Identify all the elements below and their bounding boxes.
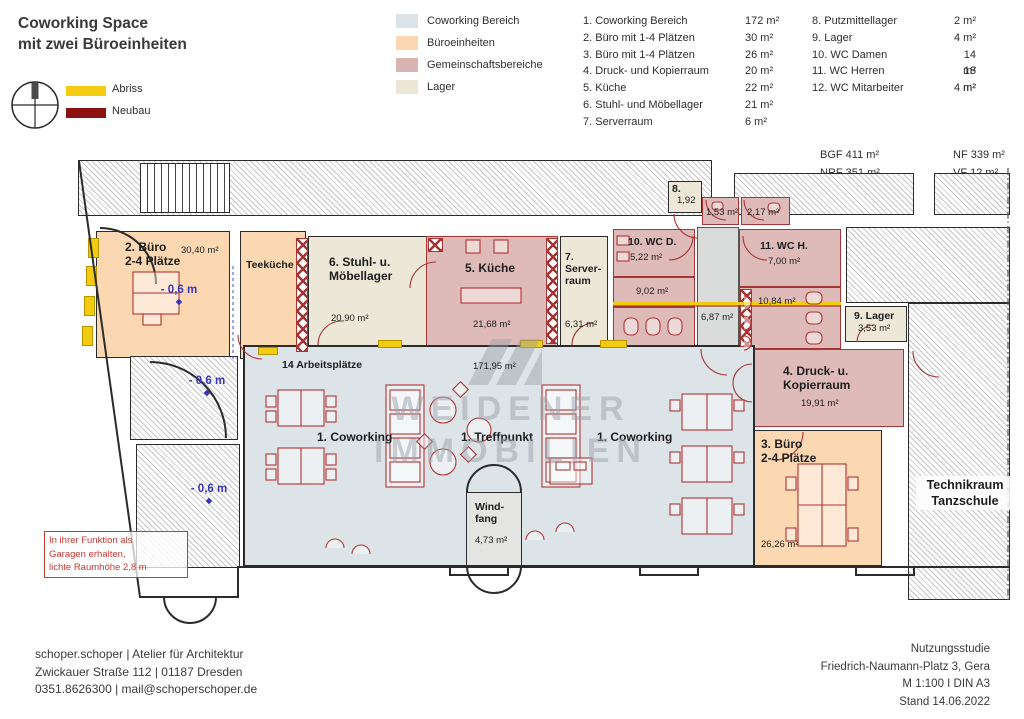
room-list-col2: 8. Putzmittellager2 m² 9. Lager4 m² 10. …: [812, 13, 1000, 97]
project-info: Nutzungsstudie Friedrich-Naumann-Platz 3…: [821, 641, 990, 711]
room-list-item: 10. WC Damen14 m²: [812, 47, 1000, 64]
legend-label-lager: Lager: [427, 81, 455, 93]
abriss-swatch: [66, 86, 106, 96]
room-7-serverraum: 7.Server-raum 6,31 m²: [560, 236, 608, 346]
legend-label-bueroeinheiten: Büroeinheiten: [427, 37, 495, 49]
room-list-item: 11. WC Herren18 m²: [812, 63, 1000, 80]
north-symbol-icon: [8, 78, 62, 132]
garage-note: In ihrer Funktion alsGaragen erhalten,li…: [44, 531, 188, 578]
legend-swatch-bueroeinheiten: [396, 36, 418, 50]
room-wc-herren-sub: 10,84 m²: [739, 287, 841, 349]
abriss-wall-segment: [86, 266, 97, 286]
room-windfang: Wind-fang 4,73 m²: [466, 492, 522, 566]
room-list-item: 7. Serverraum6 m²: [583, 114, 813, 131]
room-5-kueche: 5. Küche 21,68 m²: [426, 236, 558, 346]
room-list-item: 12. WC Mitarbeiter4 m²: [812, 80, 1000, 97]
room-2-buero: 2. Büro2-4 Plätze 30,40 m² - 0,6 m◆: [96, 231, 230, 358]
legend-swatch-gemeinschaft: [396, 58, 418, 72]
existing-area-right: [846, 227, 1010, 303]
abriss-opening: [258, 347, 278, 355]
neubau-label: Neubau: [112, 105, 151, 117]
existing-block-top-far-right: [934, 173, 1010, 215]
abriss-opening: [600, 340, 627, 348]
abriss-opening: [378, 340, 402, 348]
neubau-wall-post: [428, 238, 443, 252]
room-list-item: 6. Stuhl- und Möbellager21 m²: [583, 97, 813, 114]
abriss-line: [613, 302, 841, 305]
neubau-wall-posts: [740, 289, 752, 347]
room-9-lager: 9. Lager 3,53 m²: [845, 306, 907, 342]
room-list-item: 4. Druck- und Kopierraum20 m²: [583, 63, 813, 80]
legend-label-coworking: Coworking Bereich: [427, 15, 519, 27]
floor-plan-sheet: Coworking Space mit zwei Büroeinheiten A…: [0, 0, 1024, 719]
abriss-wall-segment: [88, 238, 99, 258]
room-list-item: 9. Lager4 m²: [812, 30, 1000, 47]
abriss-wall-segment: [84, 296, 95, 316]
page-title: Coworking Space mit zwei Büroeinheiten: [18, 13, 187, 55]
room-wc-small-1: 1,53 m²: [702, 197, 739, 225]
neubau-swatch: [66, 108, 106, 118]
room-list-item: 1. Coworking Bereich172 m²: [583, 13, 813, 30]
legend-label-gemeinschaft: Gemeinschaftsbereiche: [427, 59, 543, 71]
room-11-wc-herren: 11. WC H. 7,00 m²: [739, 229, 841, 287]
room-6-moebellager: 6. Stuhl- u.Möbellager 20,90 m²: [308, 236, 436, 346]
room-3-buero: 3. Büro2-4 Plätze 26,26 m²: [752, 430, 882, 566]
room-10-wc-damen: 10. WC D. 5,22 m²: [613, 229, 695, 277]
abriss-wall-segment: [82, 326, 93, 346]
neubau-wall-posts: [546, 238, 558, 344]
room-list-item: 5. Küche22 m²: [583, 80, 813, 97]
room-list-item: 8. Putzmittellager2 m²: [812, 13, 1000, 30]
room-list-item: 3. Büro mit 1-4 Plätzen26 m²: [583, 47, 813, 64]
garage-top: - 0,6 m◆: [130, 356, 238, 440]
technikraum-area: [908, 303, 1010, 600]
staircase: [140, 163, 230, 213]
legend-swatch-lager: [396, 80, 418, 94]
neubau-wall-posts: [296, 238, 308, 352]
room-wc-small-2: 2,17 m²: [741, 197, 790, 225]
room-list-col1: 1. Coworking Bereich172 m² 2. Büro mit 1…: [583, 13, 813, 131]
technikraum-label: TechnikraumTanzschule: [916, 476, 1014, 510]
abriss-label: Abriss: [112, 83, 143, 95]
architect-address: schoper.schoper | Atelier für Architektu…: [35, 646, 257, 699]
room-4-druck-kopierraum: 4. Druck- u.Kopierraum 19,91 m²: [752, 349, 904, 427]
legend-swatch-coworking: [396, 14, 418, 28]
room-list-item: 2. Büro mit 1-4 Plätzen30 m²: [583, 30, 813, 47]
abriss-opening: [520, 340, 543, 348]
room-8-putzmittellager: 8. 1,92: [668, 181, 702, 213]
corridor-wc: 6,87 m²: [697, 227, 739, 349]
